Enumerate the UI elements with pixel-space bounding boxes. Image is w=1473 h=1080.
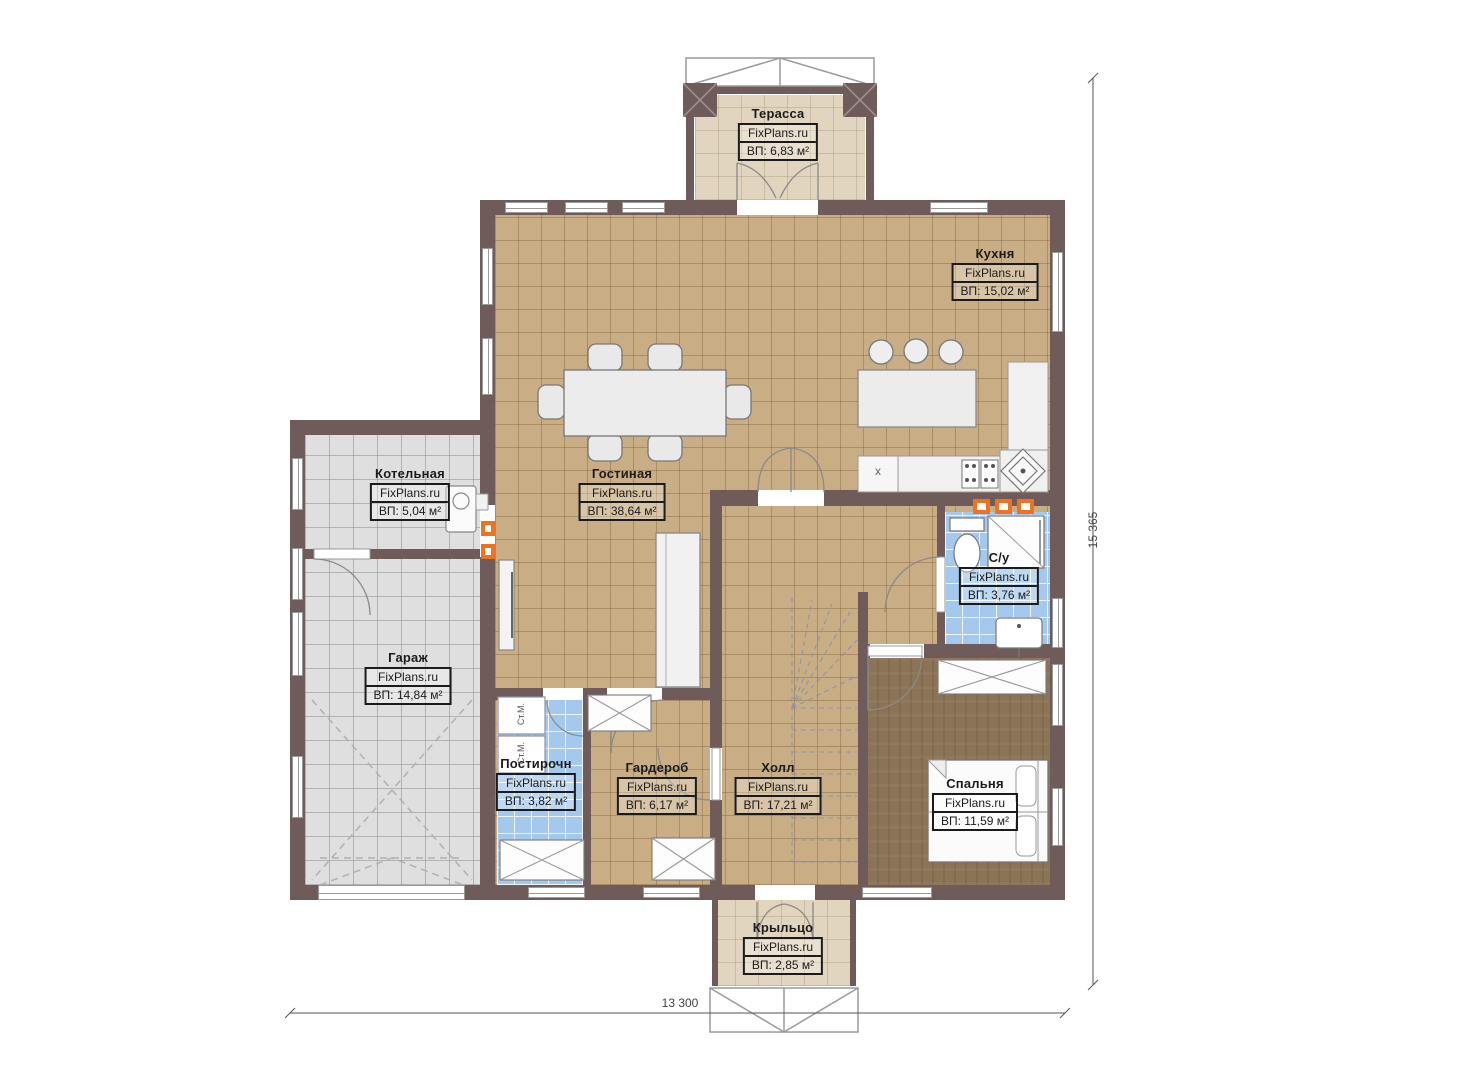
- garage-gate: [318, 885, 465, 900]
- window-top-1: [505, 202, 548, 213]
- porch-roof-truss: [710, 988, 858, 1032]
- window-left-1: [482, 248, 493, 305]
- window-annex-3: [292, 612, 303, 676]
- room-name: Спальня: [932, 776, 1018, 791]
- room-label-wardrobe: Гардероб FixPlans.ru ВП: 6,17 м²: [617, 760, 697, 815]
- room-area: ВП: 14,84 м²: [367, 687, 450, 703]
- vent-square: [481, 521, 495, 536]
- room-name: Гараж: [365, 650, 452, 665]
- floor-plan: Терасса FixPlans.ru ВП: 6,83 м² Кухня Fi…: [0, 0, 1473, 1080]
- window-top-4: [930, 202, 988, 213]
- brand-watermark: FixPlans.ru: [954, 265, 1037, 283]
- wardrobe-door-opening: [607, 688, 662, 700]
- room-name: Кухня: [952, 246, 1039, 261]
- brand-watermark: FixPlans.ru: [581, 485, 664, 503]
- brand-watermark: FixPlans.ru: [498, 775, 574, 793]
- brand-watermark: FixPlans.ru: [372, 485, 448, 503]
- brand-watermark: FixPlans.ru: [961, 569, 1037, 587]
- room-name: Терасса: [738, 106, 818, 121]
- brand-watermark: FixPlans.ru: [737, 779, 820, 797]
- brand-watermark: FixPlans.ru: [367, 669, 450, 687]
- window-annex-4: [292, 756, 303, 818]
- brand-watermark: FixPlans.ru: [745, 939, 821, 957]
- room-name: Котельная: [370, 466, 450, 481]
- living-hall-door-opening: [758, 490, 824, 506]
- room-label-bathroom: С/у FixPlans.ru ВП: 3,76 м²: [959, 550, 1039, 605]
- room-area: ВП: 2,85 м²: [745, 957, 821, 973]
- room-name: Постирочн: [496, 756, 576, 771]
- wall-annex-top: [290, 420, 480, 435]
- room-area: ВП: 15,02 м²: [954, 283, 1037, 299]
- vent-square: [481, 544, 495, 559]
- wall-porch-left: [712, 900, 718, 986]
- front-door-opening: [755, 885, 815, 900]
- vent-square: [973, 499, 990, 514]
- room-info-box: FixPlans.ru ВП: 17,21 м²: [735, 777, 822, 815]
- room-label-terrace: Терасса FixPlans.ru ВП: 6,83 м²: [738, 106, 818, 161]
- window-annex-1: [292, 458, 303, 510]
- room-info-box: FixPlans.ru ВП: 15,02 м²: [952, 263, 1039, 301]
- dimension-width: 13 300: [630, 995, 730, 1011]
- room-label-laundry: Постирочн FixPlans.ru ВП: 3,82 м²: [496, 756, 576, 811]
- floor-garage: [305, 552, 480, 885]
- room-info-box: FixPlans.ru ВП: 5,04 м²: [370, 483, 450, 521]
- room-info-box: FixPlans.ru ВП: 3,82 м²: [496, 773, 576, 811]
- room-label-garage: Гараж FixPlans.ru ВП: 14,84 м²: [365, 650, 452, 705]
- wall-bedroom-left: [858, 592, 868, 885]
- laundry-door-opening: [543, 688, 583, 700]
- boiler-garage-opening: [314, 549, 370, 559]
- room-label-boiler: Котельная FixPlans.ru ВП: 5,04 м²: [370, 466, 450, 521]
- sink-mark: x: [866, 464, 890, 478]
- room-area: ВП: 38,64 м²: [581, 503, 664, 519]
- wall-hall-left: [710, 490, 722, 885]
- brand-watermark: FixPlans.ru: [619, 779, 695, 797]
- terrace-door-opening: [737, 200, 818, 215]
- bathroom-door-opening: [937, 557, 945, 612]
- room-label-kitchen: Кухня FixPlans.ru ВП: 15,02 м²: [952, 246, 1039, 301]
- window-right-kitchen: [1052, 252, 1063, 332]
- wardrobe-hall-door-opening: [710, 748, 722, 800]
- room-info-box: FixPlans.ru ВП: 6,17 м²: [617, 777, 697, 815]
- room-info-box: FixPlans.ru ВП: 14,84 м²: [365, 667, 452, 705]
- wall-terrace-left: [686, 86, 694, 200]
- room-area: ВП: 17,21 м²: [737, 797, 820, 813]
- window-bottom-3: [862, 887, 932, 898]
- window-right-bathroom: [1052, 598, 1063, 648]
- room-label-bedroom: Спальня FixPlans.ru ВП: 11,59 м²: [932, 776, 1018, 831]
- wall-terrace-right: [866, 86, 874, 200]
- window-top-2: [565, 202, 608, 213]
- wall-terrace-top: [686, 86, 874, 94]
- window-annex-2: [292, 548, 303, 600]
- room-area: ВП: 3,82 м²: [498, 793, 574, 809]
- wall-porch-right: [850, 900, 856, 986]
- window-bottom-2: [643, 887, 700, 898]
- room-name: Холл: [735, 760, 822, 775]
- window-left-2: [482, 338, 493, 395]
- room-info-box: FixPlans.ru ВП: 38,64 м²: [579, 483, 666, 521]
- wall-laundry-wardrobe: [583, 700, 591, 885]
- vent-square: [1017, 499, 1034, 514]
- room-name: С/у: [959, 550, 1039, 565]
- room-area: ВП: 5,04 м²: [372, 503, 448, 519]
- window-right-bedroom-1: [1052, 664, 1063, 726]
- room-area: ВП: 6,83 м²: [740, 143, 816, 159]
- room-area: ВП: 6,17 м²: [619, 797, 695, 813]
- brand-watermark: FixPlans.ru: [740, 125, 816, 143]
- room-label-porch: Крыльцо FixPlans.ru ВП: 2,85 м²: [743, 920, 823, 975]
- window-bottom-1: [528, 887, 585, 898]
- brand-watermark: FixPlans.ru: [934, 795, 1016, 813]
- window-top-3: [622, 202, 665, 213]
- vent-square: [995, 499, 1012, 514]
- room-label-hall: Холл FixPlans.ru ВП: 17,21 м²: [735, 760, 822, 815]
- room-info-box: FixPlans.ru ВП: 2,85 м²: [743, 937, 823, 975]
- bedroom-door-opening: [870, 644, 924, 658]
- room-name: Гардероб: [617, 760, 697, 775]
- room-info-box: FixPlans.ru ВП: 3,76 м²: [959, 567, 1039, 605]
- room-name: Крыльцо: [743, 920, 823, 935]
- floor-bedroom: [866, 655, 1050, 885]
- room-info-box: FixPlans.ru ВП: 11,59 м²: [932, 793, 1018, 831]
- room-name: Гостиная: [579, 466, 666, 481]
- terrace-roof-truss: [686, 58, 874, 86]
- room-area: ВП: 3,76 м²: [961, 587, 1037, 603]
- room-info-box: FixPlans.ru ВП: 6,83 м²: [738, 123, 818, 161]
- washer-label: Ст.М.: [514, 718, 528, 788]
- dimension-height: 15 365: [1085, 489, 1101, 571]
- window-right-bedroom-2: [1052, 788, 1063, 846]
- room-area: ВП: 11,59 м²: [934, 813, 1016, 829]
- room-label-living: Гостиная FixPlans.ru ВП: 38,64 м²: [579, 466, 666, 521]
